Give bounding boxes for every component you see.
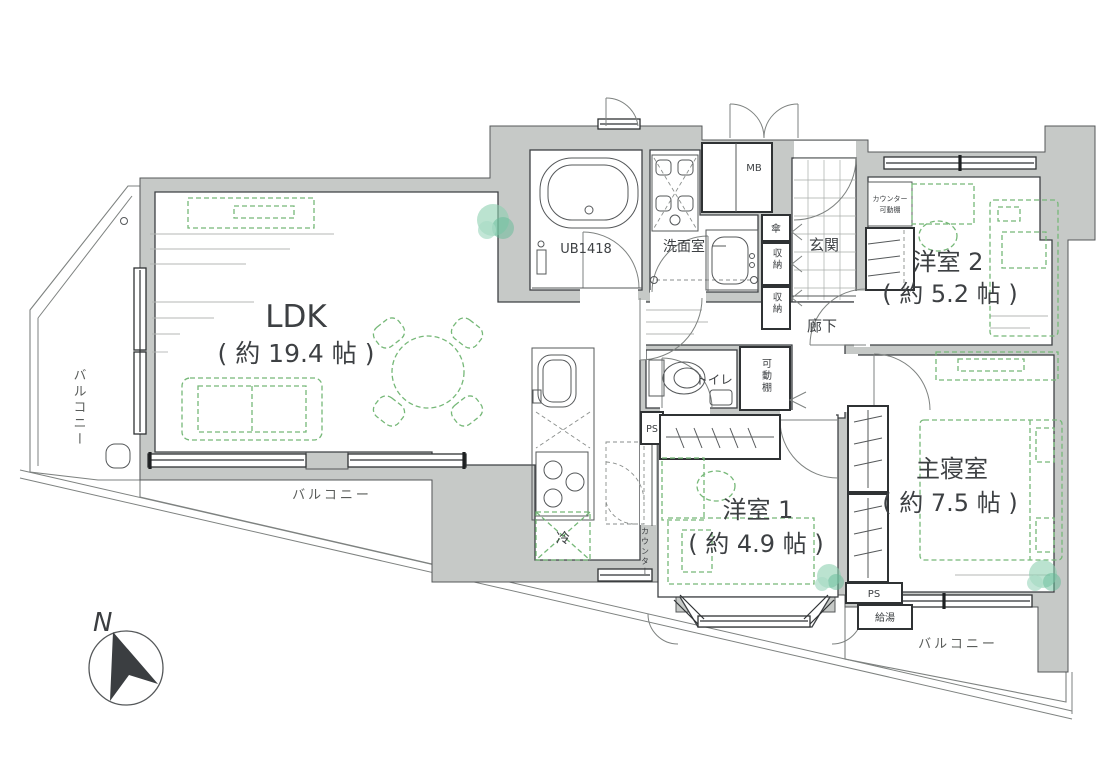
label-hallway: 廊下: [807, 317, 837, 335]
meter-box: [702, 143, 772, 212]
label-bath: UB1418: [560, 242, 612, 257]
label-ps-right: PS: [868, 589, 880, 600]
label-master: 主寝室: [916, 455, 988, 483]
label-balcony-left: バルコニー: [71, 368, 87, 448]
label-meter-box: MB: [746, 163, 762, 174]
counter-passthrough: [640, 440, 656, 525]
window-western2-top: [884, 155, 1036, 171]
label-master-size: ( 約 7.5 帖 ): [882, 489, 1017, 517]
label-western1-size: ( 約 4.9 帖 ): [688, 530, 823, 558]
label-western2: 洋室 2: [913, 248, 984, 276]
label-balcony-bottom: バルコニー: [292, 488, 372, 503]
north-arrow: N: [89, 608, 163, 705]
label-counter-shelf-2: 可動棚: [880, 205, 901, 214]
door-opening: [780, 410, 836, 419]
north-letter: N: [93, 608, 112, 638]
label-western1: 洋室 1: [723, 496, 794, 524]
label-washroom: 洗面室: [663, 238, 705, 255]
door-opening: [843, 354, 858, 412]
closet-western1: [660, 415, 780, 459]
floor-plan: LDK ( 約 19.4 帖 ) 洋室 2 ( 約 5.2 帖 ) 主寝室 ( …: [0, 0, 1100, 777]
door-opening: [794, 141, 856, 157]
window-bath-top: [598, 119, 640, 129]
rooms: [155, 141, 1054, 627]
label-water-heater: 給湯: [875, 611, 895, 624]
counter-shelf-box: [868, 182, 912, 226]
label-counter: カウンター: [641, 527, 650, 577]
label-counter-shelf-1: カウンター: [873, 194, 908, 203]
door-opening: [636, 300, 646, 360]
label-umbrella: 傘: [771, 223, 781, 235]
door-porch-double: [730, 104, 798, 138]
label-storage-lower: 収納: [771, 291, 783, 315]
label-ps-left: PS: [646, 424, 658, 435]
window-mullion: [306, 452, 348, 469]
label-movable-shelf: 可動棚: [760, 358, 772, 394]
label-balcony-right: バルコニー: [918, 637, 998, 652]
label-storage-upper: 収納: [771, 247, 783, 271]
label-entrance: 玄関: [809, 236, 839, 254]
label-toilet: トイレ: [695, 372, 733, 387]
label-fridge: 冷: [556, 531, 570, 547]
door-opening: [854, 291, 870, 347]
door-opening: [650, 290, 706, 304]
label-ldk: LDK: [265, 299, 327, 335]
floor-plan-canvas: LDK ( 約 19.4 帖 ) 洋室 2 ( 約 5.2 帖 ) 主寝室 ( …: [0, 0, 1100, 777]
label-western2-size: ( 約 5.2 帖 ): [882, 280, 1017, 308]
door-opening: [580, 286, 638, 304]
balcony-bottom: [140, 480, 432, 564]
label-ldk-size: ( 約 19.4 帖 ): [218, 339, 375, 368]
